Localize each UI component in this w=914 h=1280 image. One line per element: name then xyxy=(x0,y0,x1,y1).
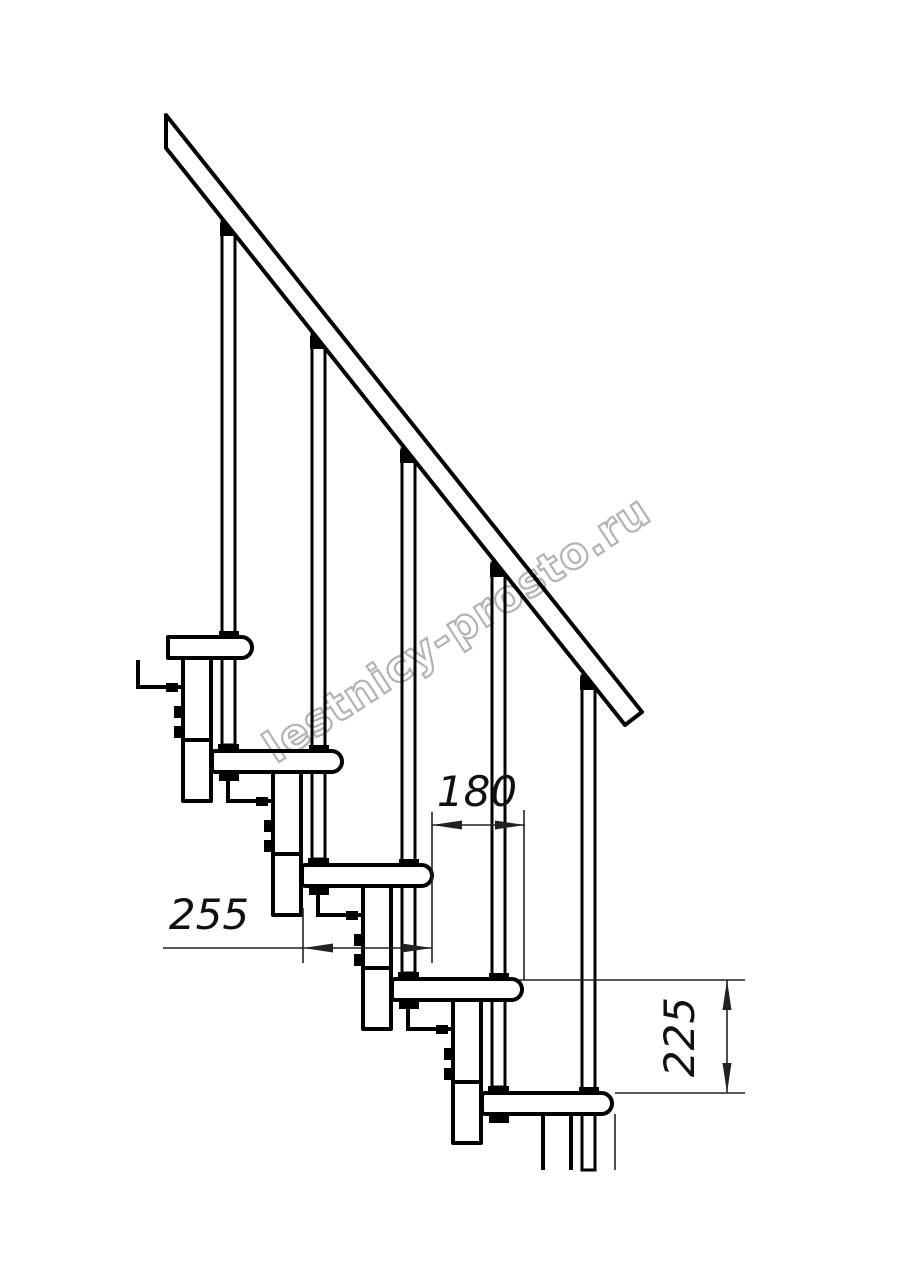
dimension-label-255: 255 xyxy=(169,890,249,939)
column-bolt-tab xyxy=(174,726,185,738)
baluster-nut-1 xyxy=(219,772,239,781)
support-column-3 xyxy=(363,886,391,1029)
column-bolt-tab xyxy=(354,954,365,966)
baluster-flange-1 xyxy=(219,631,239,638)
column-bolt-tab xyxy=(264,820,275,832)
drawing-canvas: 180 255 225 lestnicy-prosto.ru xyxy=(0,0,914,1280)
column-bolt-tab xyxy=(264,840,275,852)
support-column-4 xyxy=(453,1000,481,1143)
column-bolt-tab xyxy=(444,1048,455,1060)
baluster-post-3 xyxy=(402,449,415,973)
baluster-nut-4 xyxy=(489,1114,509,1123)
baluster-post-2 xyxy=(312,335,325,859)
column-bolt-tab xyxy=(354,934,365,946)
baluster-nut-3 xyxy=(399,1000,419,1009)
dimension-label-180: 180 xyxy=(437,767,517,816)
baluster-nut-2 xyxy=(309,886,329,895)
bracket-bolt-tab xyxy=(436,1025,448,1034)
baluster-base-cap-4 xyxy=(488,1086,509,1094)
staircase-technical-drawing: 180 255 225 lestnicy-prosto.ru xyxy=(0,0,914,1280)
baluster-flange-5 xyxy=(579,1087,599,1094)
tread-1 xyxy=(168,637,252,658)
support-column-1 xyxy=(183,658,211,801)
bracket-bolt-tab xyxy=(346,911,358,920)
baluster-post-1 xyxy=(222,222,235,745)
baluster-flange-4 xyxy=(489,973,509,980)
dimension-label-225: 225 xyxy=(655,997,704,1077)
tread-4 xyxy=(392,979,522,1000)
column-bolt-tab xyxy=(174,706,185,718)
support-column-2 xyxy=(273,772,301,915)
baluster-base-cap-1 xyxy=(218,744,239,752)
column-bolt-tab xyxy=(444,1068,455,1080)
bracket-bolt-tab xyxy=(166,683,178,692)
baluster-flange-3 xyxy=(399,859,419,866)
tread-5 xyxy=(482,1093,612,1114)
baluster-base-cap-3 xyxy=(398,972,419,980)
baluster-base-cap-2 xyxy=(308,858,329,866)
bracket-bolt-tab xyxy=(256,797,268,806)
tread-3 xyxy=(302,865,432,886)
